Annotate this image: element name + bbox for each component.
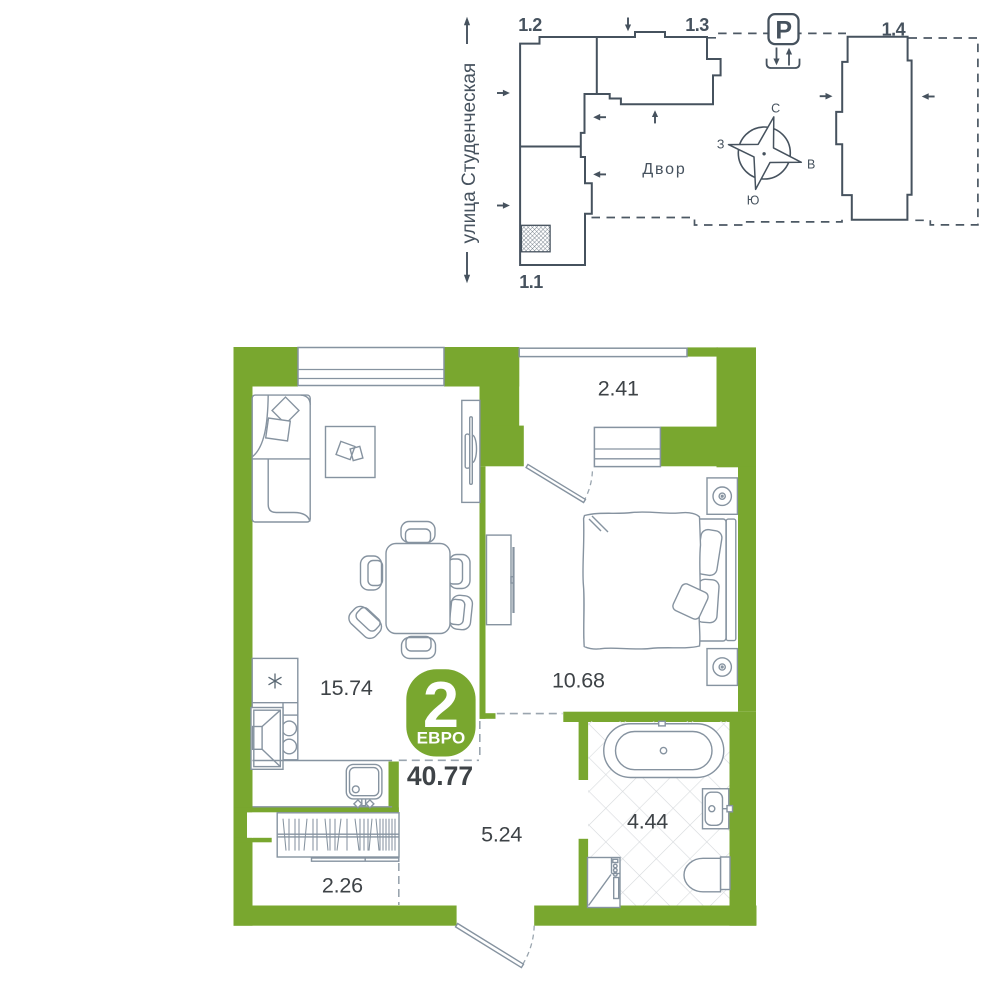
svg-text:1.1: 1.1 [519,272,543,292]
svg-text:Двор: Двор [642,161,686,178]
svg-text:1.4: 1.4 [882,20,906,40]
svg-text:ЕВРО: ЕВРО [417,729,466,748]
svg-text:В: В [807,157,815,171]
svg-text:улица Студенческая: улица Студенческая [459,63,480,244]
svg-text:40.77: 40.77 [407,761,473,791]
svg-text:4.44: 4.44 [627,809,668,833]
svg-text:2.26: 2.26 [322,873,363,897]
svg-text:15.74: 15.74 [320,676,373,700]
svg-text:P: P [775,17,792,45]
svg-text:2.41: 2.41 [598,377,639,401]
svg-text:1.2: 1.2 [518,15,542,35]
svg-text:5.24: 5.24 [481,823,522,847]
svg-text:1.3: 1.3 [685,15,709,35]
svg-text:З: З [717,137,725,151]
svg-text:С: С [771,102,780,116]
svg-text:Ю: Ю [747,193,760,207]
svg-text:10.68: 10.68 [552,668,605,692]
